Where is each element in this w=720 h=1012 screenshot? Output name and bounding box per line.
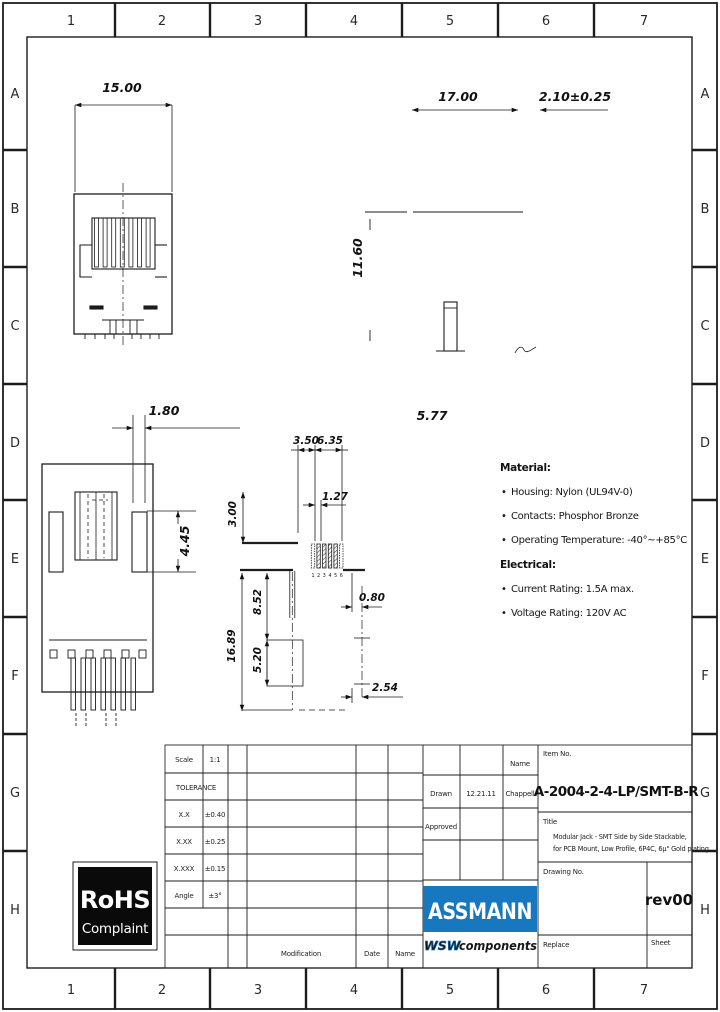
dim-hole-pitch: 2.54 <box>372 682 398 694</box>
material-item: Contacts: Phosphor Bronze <box>511 511 639 522</box>
grid-row-label: G <box>10 786 20 801</box>
bullet: • <box>501 584 507 595</box>
pad-number: 1 <box>311 573 314 579</box>
grid-col-label: 5 <box>446 14 454 29</box>
components-wordmark: components <box>459 938 537 953</box>
grid-col-label: 3 <box>254 14 262 29</box>
tolerance-row-value: ±0.40 <box>205 811 225 819</box>
grid-col-label: 7 <box>640 14 648 29</box>
grid-row-label: H <box>10 903 20 918</box>
pad-number: 2 <box>317 573 320 579</box>
dim-front-width: 15.00 <box>102 80 142 95</box>
assmann-wordmark: ASSMANN <box>428 900 532 925</box>
grid-col-label: 2 <box>158 983 166 998</box>
grid-row-label: C <box>700 319 709 334</box>
scale-value: 1:1 <box>210 756 221 764</box>
dim-height: 11.60 <box>350 238 365 278</box>
grid-col-label: 4 <box>350 983 358 998</box>
tolerance-row-value: ±3° <box>208 892 221 900</box>
tolerance-row-value: ±0.25 <box>205 838 225 846</box>
bullet: • <box>501 608 507 619</box>
sheet-label: Sheet <box>651 939 671 947</box>
dim-post: 5.77 <box>417 408 448 423</box>
title-block-lines <box>165 745 692 968</box>
scale-label: Scale <box>175 756 193 764</box>
drawn-name: Chappell <box>505 790 534 798</box>
tolerance-row-label: Angle <box>175 892 194 900</box>
grid-row-label: F <box>701 669 708 684</box>
name-label: Name <box>395 950 415 958</box>
pad-number: 5 <box>334 573 337 579</box>
sheet-border <box>3 3 717 1009</box>
revision: rev00 <box>645 891 693 909</box>
grid-row-label: C <box>10 319 19 334</box>
grid-col-label: 4 <box>350 14 358 29</box>
dim-latch: 4.45 <box>177 525 192 557</box>
name-column-header: Name <box>510 760 530 768</box>
footprint-view <box>240 445 403 711</box>
rear-view <box>42 415 240 727</box>
title-line2: for PCB Mount, Low Profile, 6P4C, 6µ" Go… <box>553 845 709 853</box>
grid-row-label: H <box>700 903 710 918</box>
tolerance-row-label: X.XXX <box>174 865 195 873</box>
grid-col-label: 6 <box>542 983 550 998</box>
grid-col-label: 5 <box>446 983 454 998</box>
item-number: A-2004-2-4-LP/SMT-B-R <box>534 784 700 800</box>
title-label: Title <box>542 818 557 826</box>
dim-pad-left: 3.50 <box>293 435 319 447</box>
grid-row-label: A <box>11 87 20 102</box>
grid-col-label: 7 <box>640 983 648 998</box>
rohs-subtext: Complaint <box>82 921 148 937</box>
dim-hole-span: 5.20 <box>252 647 264 673</box>
tolerance-row-value: ±0.15 <box>205 865 225 873</box>
modification-label: Modification <box>281 950 321 958</box>
grid-row-label: E <box>11 552 19 567</box>
drawn-label: Drawn <box>430 790 452 798</box>
drawn-date: 12.21.11 <box>466 790 496 798</box>
grid-row-label: E <box>701 552 709 567</box>
tolerance-label: TOLERANCE <box>175 784 216 792</box>
grid-col-label: 3 <box>254 983 262 998</box>
tolerance-row-label: X.X <box>178 811 190 819</box>
grid-col-label: 6 <box>542 14 550 29</box>
dim-hole-top: 8.52 <box>252 589 264 615</box>
grid-row-label: F <box>11 669 18 684</box>
dim-pitch: 1.27 <box>322 491 349 503</box>
dim-side-width: 17.00 <box>438 89 478 104</box>
pad-numbers: 1 2 3 4 5 6 <box>311 573 342 579</box>
dim-tab: 2.10±0.25 <box>539 89 611 104</box>
side-view <box>365 110 608 353</box>
rohs-logo: RoHS Complaint <box>73 862 157 950</box>
pad-number: 3 <box>323 573 326 579</box>
bullet: • <box>501 511 507 522</box>
grid-row-label: D <box>10 436 20 451</box>
electrical-item: Current Rating: 1.5A max. <box>511 584 634 595</box>
grid-col-label: 1 <box>67 14 75 29</box>
front-view <box>74 105 172 348</box>
material-item: Operating Temperature: -40°~+85°C <box>511 535 687 546</box>
bullet: • <box>501 487 507 498</box>
material-item: Housing: Nylon (UL94V-0) <box>511 487 633 498</box>
drawing-sheet: 1 2 3 4 5 6 7 1 2 3 4 5 6 7 A B C D E F … <box>0 0 720 1012</box>
wsw-wordmark: WSW <box>424 938 462 953</box>
material-title: Material: <box>500 462 551 474</box>
grid-row-label: B <box>701 202 710 217</box>
notes-block: Material: • Housing: Nylon (UL94V-0) • C… <box>500 462 687 619</box>
grid-col-label: 2 <box>158 14 166 29</box>
dim-slot: 1.80 <box>149 403 180 418</box>
drawing-no-label: Drawing No. <box>543 868 584 876</box>
grid-col-label: 1 <box>67 983 75 998</box>
dim-pad-len: 3.00 <box>227 501 239 527</box>
dim-offset: 0.80 <box>359 592 385 604</box>
electrical-title: Electrical: <box>500 559 556 571</box>
item-no-label: Item No. <box>543 750 571 758</box>
title-line1: Modular Jack - SMT Side by Side Stackabl… <box>553 833 687 841</box>
date-label: Date <box>364 950 380 958</box>
pad-number: 6 <box>340 573 343 579</box>
grid-row-label: D <box>700 436 710 451</box>
engineering-drawing: 1 2 3 4 5 6 7 1 2 3 4 5 6 7 A B C D E F … <box>0 0 720 1012</box>
replace-label: Replace <box>543 941 569 949</box>
rohs-text: RoHS <box>80 886 150 914</box>
grid-row-label: G <box>700 786 710 801</box>
grid-row-label: A <box>701 87 710 102</box>
assmann-logo: ASSMANN WSW components <box>423 886 537 953</box>
dim-pad-span: 6.35 <box>317 435 343 447</box>
tolerance-row-label: X.XX <box>176 838 192 846</box>
approved-label: Approved <box>425 823 457 831</box>
grid-row-label: B <box>11 202 20 217</box>
dim-total-len: 16.89 <box>226 629 238 662</box>
pad-number: 4 <box>328 573 331 579</box>
bullet: • <box>501 535 507 546</box>
electrical-item: Voltage Rating: 120V AC <box>511 608 627 619</box>
